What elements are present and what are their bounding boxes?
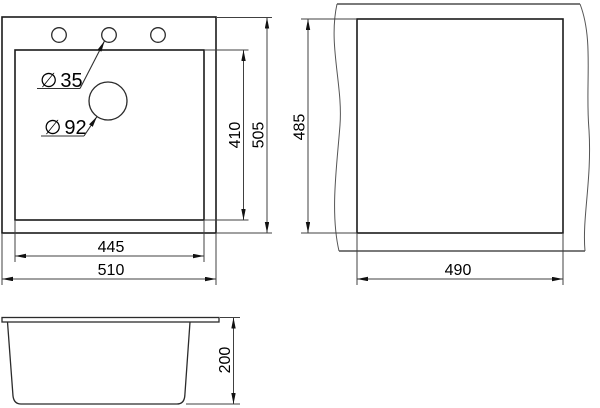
dimension-cutout-height: 485: [292, 19, 309, 233]
dimension-value-200: 200: [217, 347, 234, 374]
faucet-hole-right: [151, 28, 166, 43]
sink-front-view: 200: [2, 318, 240, 405]
drain-hole: [89, 82, 127, 120]
sink-top-view: ∅35 ∅92: [2, 17, 272, 285]
faucet-hole-left: [52, 28, 67, 43]
cutout-rectangle: [357, 19, 563, 233]
sink-bowl-profile: [8, 322, 191, 404]
extension-lines: [2, 18, 272, 286]
dimension-outer-width: 510: [2, 262, 216, 279]
extension-lines: [301, 19, 563, 285]
dimension-inner-width: 445: [15, 239, 204, 256]
dimension-value-505: 505: [251, 122, 268, 149]
dimension-value-410: 410: [227, 122, 244, 149]
technical-drawing-page: ∅35 ∅92: [0, 0, 600, 408]
dimension-bowl-height: 200: [217, 318, 234, 405]
dimension-value-485: 485: [292, 114, 309, 141]
leader-arrow: [80, 41, 105, 89]
break-line-left: [334, 4, 340, 251]
drain-hole-diameter-callout: ∅92: [41, 117, 97, 140]
sink-dimension-drawing: ∅35 ∅92: [0, 0, 600, 408]
dimension-value-510: 510: [98, 262, 125, 279]
dimension-value-445: 445: [98, 239, 125, 256]
dimension-inner-depth: 410: [227, 50, 244, 220]
countertop-cutout-view: 485 490: [292, 4, 590, 285]
faucet-holes: [52, 28, 166, 43]
sink-rim-profile: [2, 318, 219, 323]
faucet-hole-diameter-callout: ∅35: [37, 41, 105, 92]
dimension-cutout-width: 490: [357, 262, 563, 279]
break-line-right: [580, 4, 590, 251]
faucet-hole-center: [102, 28, 117, 43]
dimension-value-490: 490: [445, 262, 472, 279]
dimension-outer-depth: 505: [251, 18, 268, 234]
